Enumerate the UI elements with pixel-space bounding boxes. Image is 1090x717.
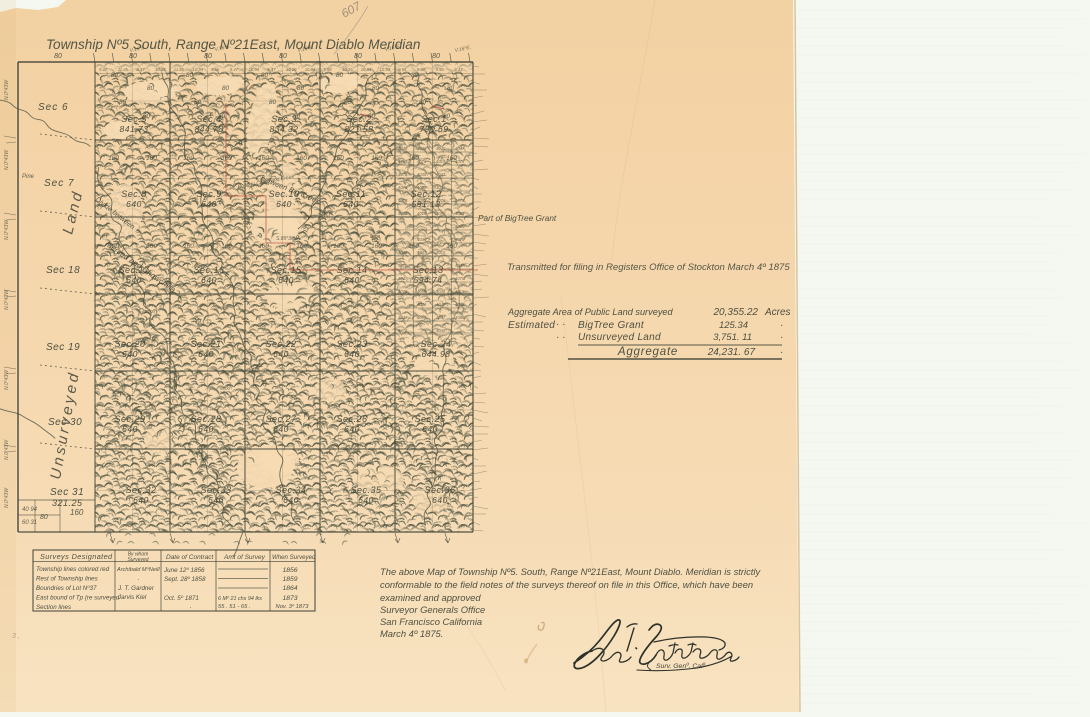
svg-text:8000: 8000 (220, 154, 231, 159)
svg-text:640: 640 (133, 495, 149, 505)
svg-text:When Surveyed: When Surveyed (272, 554, 316, 561)
svg-text:640: 640 (344, 275, 360, 285)
svg-text:160: 160 (446, 243, 457, 250)
svg-text:80: 80 (147, 85, 155, 92)
svg-text:10.29: 10.29 (286, 67, 297, 72)
svg-text:80: 80 (111, 72, 119, 79)
svg-text:160: 160 (296, 243, 307, 250)
svg-text:10.15: 10.15 (155, 67, 166, 72)
svg-text:80: 80 (411, 72, 419, 79)
svg-text:640: 640 (198, 349, 214, 359)
svg-text:80: 80 (344, 99, 352, 106)
svg-text:Sec.21: Sec.21 (190, 339, 221, 349)
svg-text:821.58: 821.58 (345, 124, 374, 134)
svg-text:160: 160 (296, 155, 307, 162)
svg-text:.: . (138, 575, 140, 582)
svg-text:Acres: Acres (764, 307, 791, 318)
svg-text:8000: 8000 (145, 462, 156, 467)
svg-text:4047: 4047 (436, 315, 446, 320)
svg-text:Oct. 5º 1871: Oct. 5º 1871 (164, 595, 199, 602)
svg-text:160: 160 (371, 243, 382, 250)
svg-text:20,355.22: 20,355.22 (713, 307, 759, 318)
svg-text:640: 640 (208, 495, 224, 505)
svg-text:640: 640 (126, 275, 142, 285)
svg-text:Aggregate Area of Public Land: Aggregate Area of Public Land surveyed (507, 307, 674, 317)
svg-text:Unsurveyed Land: Unsurveyed Land (578, 332, 661, 343)
svg-text:8000: 8000 (145, 309, 156, 314)
svg-text:160: 160 (258, 243, 269, 250)
svg-text:160: 160 (183, 243, 194, 250)
svg-text:1864: 1864 (282, 585, 297, 592)
svg-text:80: 80 (354, 53, 362, 60)
svg-text:4046: 4046 (417, 172, 427, 177)
svg-text:4015: 4015 (436, 159, 446, 164)
svg-text:160: 160 (258, 155, 269, 162)
svg-text:N.0°43W: N.0°43W (4, 439, 10, 460)
svg-text:4078: 4078 (455, 198, 465, 203)
svg-text:Sec.32: Sec.32 (125, 485, 156, 495)
svg-text:Sec.24: Sec.24 (420, 339, 451, 349)
svg-text:640: 640 (201, 275, 217, 285)
svg-text:8000: 8000 (295, 309, 306, 314)
svg-text:10.94: 10.94 (193, 67, 204, 72)
svg-text:4015: 4015 (417, 211, 427, 216)
svg-text:80: 80 (261, 72, 269, 79)
svg-text:Estimated: Estimated (508, 320, 555, 331)
svg-text:10.94: 10.94 (305, 67, 316, 72)
svg-text:4047: 4047 (398, 315, 408, 320)
svg-text:640: 640 (273, 424, 289, 434)
svg-text:4099: 4099 (417, 289, 427, 294)
svg-text:N.0°43W: N.0°43W (4, 289, 10, 310)
svg-text:4047: 4047 (455, 146, 465, 151)
svg-text:80: 80 (143, 113, 151, 120)
svg-text:160: 160 (221, 243, 232, 250)
svg-text:N.0°43W: N.0°43W (4, 219, 10, 240)
svg-text:Sept. 28º 1858: Sept. 28º 1858 (164, 576, 206, 583)
svg-text:4046: 4046 (436, 289, 446, 294)
svg-text:4046: 4046 (436, 185, 446, 190)
svg-text:Sec.9: Sec.9 (196, 189, 222, 199)
svg-text:S.89°39W: S.89°39W (276, 236, 300, 242)
svg-text:40 94: 40 94 (22, 507, 38, 513)
svg-text:160: 160 (146, 243, 157, 250)
svg-text:4078: 4078 (398, 289, 408, 294)
svg-text:55 . 51 - 65 .: 55 . 51 - 65 . (218, 604, 251, 610)
svg-text:1856: 1856 (282, 567, 297, 574)
svg-text:June 12º 1856: June 12º 1856 (163, 567, 205, 574)
svg-text:10.94: 10.94 (380, 67, 391, 72)
svg-text:160: 160 (333, 155, 344, 162)
svg-text:Sec 19: Sec 19 (46, 342, 80, 353)
svg-text:Transmitted for filing in Regi: Transmitted for filing in Registers Offi… (507, 262, 790, 273)
svg-text:80: 80 (194, 99, 202, 106)
svg-text:640: 640 (432, 495, 448, 505)
svg-text:4078: 4078 (417, 263, 427, 268)
svg-text:N.0°43W: N.0°43W (4, 79, 10, 100)
svg-text:Sec.23: Sec.23 (336, 339, 367, 349)
svg-text:640: 640 (422, 424, 438, 434)
svg-text:Sec.35: Sec.35 (350, 485, 382, 495)
svg-text:J. T. Gardner: J. T. Gardner (117, 585, 155, 592)
svg-text:80: 80 (293, 113, 301, 120)
svg-text:Sec.29: Sec.29 (114, 414, 145, 424)
svg-text:80: 80 (419, 99, 427, 106)
svg-text:Township lines colored red: Township lines colored red (36, 566, 110, 573)
svg-text:Part of BigTree Grant: Part of BigTree Grant (478, 213, 557, 223)
svg-text:4078: 4078 (398, 328, 408, 333)
svg-text:Surveyed: Surveyed (127, 557, 148, 563)
svg-text:841.73: 841.73 (120, 124, 149, 134)
svg-text:4046: 4046 (417, 302, 427, 307)
svg-text:640: 640 (278, 275, 294, 285)
svg-text:San Francisco California: San Francisco California (380, 616, 482, 627)
svg-text:· ·: · · (556, 319, 565, 330)
svg-text:Sec.20: Sec.20 (114, 339, 145, 349)
svg-text:Sec.26: Sec.26 (336, 414, 367, 424)
svg-text:640: 640 (283, 495, 299, 505)
svg-text:80: 80 (119, 99, 127, 106)
svg-text:10.15: 10.15 (342, 67, 353, 72)
svg-text:N.0°43W: N.0°43W (4, 369, 10, 390)
svg-text:Rest of Township lines: Rest of Township lines (36, 576, 98, 583)
svg-text:4078: 4078 (398, 263, 408, 268)
svg-text:3,751. 11: 3,751. 11 (713, 332, 752, 343)
svg-text:640: 640 (201, 199, 217, 209)
svg-text:80: 80 (372, 85, 380, 92)
svg-text:Pine: Pine (22, 174, 35, 180)
svg-text:834.32: 834.32 (270, 124, 299, 134)
svg-text:4078: 4078 (455, 159, 465, 164)
svg-text:·: · (780, 347, 783, 358)
svg-text:Sec.14: Sec.14 (336, 265, 367, 275)
svg-text:Sec.22: Sec.22 (265, 339, 296, 349)
svg-text:80: 80 (40, 514, 48, 521)
svg-text:80: 80 (54, 53, 62, 60)
svg-text:Section lines: Section lines (36, 604, 71, 611)
svg-text:9.56: 9.56 (211, 67, 220, 72)
svg-text:24,231. 67: 24,231. 67 (707, 347, 756, 358)
svg-text:N.0°43W: N.0°43W (4, 487, 10, 508)
svg-text:Sec.36: Sec.36 (424, 485, 455, 495)
svg-text:Sec.33: Sec.33 (200, 485, 231, 495)
svg-text:Sec.15: Sec.15 (270, 265, 302, 275)
svg-text:Sec.25: Sec.25 (414, 414, 446, 424)
svg-text:4078: 4078 (455, 276, 465, 281)
svg-text:9.56: 9.56 (436, 67, 445, 72)
svg-text:80: 80 (432, 53, 440, 60)
svg-text:4047: 4047 (455, 263, 465, 268)
svg-text:Sec.16: Sec.16 (193, 265, 224, 275)
svg-text:Sec.8: Sec.8 (121, 189, 147, 199)
svg-text:4046: 4046 (398, 146, 408, 151)
svg-text:The above Map of Township Nº5.: The above Map of Township Nº5. South, Ra… (380, 566, 761, 577)
svg-text:80: 80 (447, 85, 455, 92)
svg-text:N.0°43W: N.0°43W (4, 149, 10, 170)
svg-text:4047: 4047 (436, 172, 446, 177)
svg-text:4046: 4046 (436, 146, 446, 151)
svg-text:4047: 4047 (417, 276, 427, 281)
svg-text:4099: 4099 (417, 185, 427, 190)
svg-text:4046: 4046 (436, 328, 446, 333)
svg-text:Nov. 3º 1873: Nov. 3º 1873 (276, 603, 310, 610)
svg-text:160: 160 (70, 508, 84, 517)
svg-text:321.25: 321.25 (52, 498, 83, 508)
svg-text:80: 80 (204, 53, 212, 60)
svg-text:4015: 4015 (398, 211, 408, 216)
svg-text:4015: 4015 (436, 250, 446, 255)
svg-text:640: 640 (358, 495, 374, 505)
svg-text:4015: 4015 (455, 224, 465, 229)
svg-text:640: 640 (273, 349, 289, 359)
svg-text:March 4º 1875.: March 4º 1875. (380, 628, 443, 639)
svg-text:80: 80 (186, 72, 194, 79)
svg-text:11.45: 11.45 (118, 67, 129, 72)
svg-text:640: 640 (198, 424, 214, 434)
svg-text:80: 80 (218, 113, 226, 120)
svg-text:9.56: 9.56 (323, 67, 332, 72)
svg-text:10.94: 10.94 (361, 67, 372, 72)
svg-text:640: 640 (344, 349, 360, 359)
svg-text:640: 640 (126, 199, 142, 209)
svg-text:4015: 4015 (455, 289, 465, 294)
svg-text:640: 640 (122, 349, 138, 359)
svg-text:790.69: 790.69 (420, 124, 449, 134)
svg-text:· ·: · · (556, 332, 565, 343)
svg-text:Jarvis Kiel: Jarvis Kiel (117, 594, 147, 601)
svg-text:9.47: 9.47 (267, 67, 276, 72)
svg-text:125.34: 125.34 (719, 320, 748, 331)
svg-text:Date of Contract: Date of Contract (166, 554, 215, 561)
svg-text:·: · (780, 332, 783, 343)
svg-text:80: 80 (368, 113, 376, 120)
svg-text:4099: 4099 (417, 198, 427, 203)
svg-text:9.47: 9.47 (136, 67, 145, 72)
svg-text:4046: 4046 (417, 146, 427, 151)
svg-text:9.47: 9.47 (454, 67, 463, 72)
svg-text:8000: 8000 (220, 386, 231, 391)
svg-text:Sec 18: Sec 18 (46, 265, 80, 276)
svg-text:4078: 4078 (417, 159, 427, 164)
svg-text:80: 80 (279, 53, 287, 60)
svg-text:Surv. Genº. Calº: Surv. Genº. Calº (656, 663, 706, 670)
svg-text:4099: 4099 (436, 211, 446, 216)
svg-text:Amt of Survey: Amt of Survey (223, 554, 266, 561)
svg-text:4078: 4078 (398, 198, 408, 203)
svg-text:4078: 4078 (398, 185, 408, 190)
svg-text:Sec 7: Sec 7 (44, 178, 75, 189)
svg-text:4047: 4047 (417, 250, 427, 255)
svg-text:9.47: 9.47 (230, 67, 239, 72)
svg-text:Sec 31: Sec 31 (50, 487, 84, 498)
svg-text:1859: 1859 (282, 576, 297, 583)
svg-text:Sec 6: Sec 6 (38, 102, 69, 113)
svg-text:644.98: 644.98 (422, 349, 451, 359)
svg-text:640: 640 (276, 199, 292, 209)
svg-text:Sec.11: Sec.11 (336, 189, 366, 199)
svg-text:Surveyor Generals Office: Surveyor Generals Office (380, 604, 485, 615)
svg-text:80: 80 (443, 113, 451, 120)
svg-text:6 Mº 21 chs 94 lks: 6 Mº 21 chs 94 lks (218, 596, 262, 602)
svg-text:.: . (190, 603, 192, 610)
svg-text:10.94: 10.94 (249, 67, 260, 72)
svg-text:4099: 4099 (417, 315, 427, 320)
svg-text:Surveys Designated: Surveys Designated (40, 552, 113, 561)
svg-text:4047: 4047 (398, 276, 408, 281)
svg-text:examined and approved: examined and approved (380, 592, 481, 603)
svg-text:4078: 4078 (455, 237, 465, 242)
svg-text:640: 640 (122, 424, 138, 434)
svg-text:·: · (780, 320, 783, 331)
svg-text:160: 160 (183, 155, 194, 162)
svg-text:8000: 8000 (370, 234, 381, 239)
svg-text:60 31: 60 31 (22, 520, 37, 526)
svg-text:80: 80 (336, 72, 344, 79)
svg-text:160: 160 (408, 243, 419, 250)
svg-text:8000: 8000 (295, 462, 306, 467)
svg-text:1873: 1873 (282, 595, 297, 602)
svg-text:4046: 4046 (398, 250, 408, 255)
svg-text:80: 80 (129, 53, 137, 60)
svg-text:8000: 8000 (370, 386, 381, 391)
svg-text:9.56: 9.56 (398, 67, 407, 72)
svg-text:160: 160 (371, 155, 382, 162)
svg-text:9.47: 9.47 (99, 67, 108, 72)
svg-text:4078: 4078 (398, 172, 408, 177)
svg-text:80: 80 (222, 85, 230, 92)
svg-text:640: 640 (344, 424, 360, 434)
svg-text:4078: 4078 (436, 198, 446, 203)
svg-text:4099: 4099 (398, 159, 408, 164)
svg-text:4046: 4046 (455, 302, 465, 307)
svg-text:80: 80 (297, 85, 305, 92)
svg-text:640: 640 (343, 199, 359, 209)
svg-text:9.47: 9.47 (417, 67, 426, 72)
svg-text:4046: 4046 (417, 237, 427, 242)
svg-text:160: 160 (333, 243, 344, 250)
svg-text:160: 160 (108, 155, 119, 162)
svg-text:Boundries of Lot Nº37: Boundries of Lot Nº37 (36, 585, 97, 592)
svg-text:Sec.34: Sec.34 (275, 485, 306, 495)
svg-text:4046: 4046 (455, 315, 465, 320)
svg-text:Archibald MᵒNeill: Archibald MᵒNeill (116, 567, 160, 573)
svg-text:BigTree Grant: BigTree Grant (578, 320, 645, 331)
svg-text:3 ,: 3 , (12, 633, 20, 640)
svg-text:Aggregate: Aggregate (617, 346, 678, 358)
svg-text:Township Nº5 South, Range Nº2: Township Nº5 South, Range Nº21East, Moun… (46, 37, 420, 52)
svg-text:East bound of Tp (re surveyed: East bound of Tp (re surveyed (36, 595, 120, 602)
svg-text:11.45: 11.45 (174, 67, 185, 72)
svg-text:844.78: 844.78 (195, 124, 224, 134)
svg-text:4047: 4047 (436, 302, 446, 307)
svg-text:Sec.27: Sec.27 (265, 414, 297, 424)
svg-text:4015: 4015 (455, 211, 465, 216)
svg-text:80: 80 (269, 99, 277, 106)
svg-text:Sec.28: Sec.28 (190, 414, 221, 424)
svg-text:8000: 8000 (145, 154, 156, 159)
svg-text:conformable to the field notes: conformable to the field notes of the su… (380, 579, 753, 590)
